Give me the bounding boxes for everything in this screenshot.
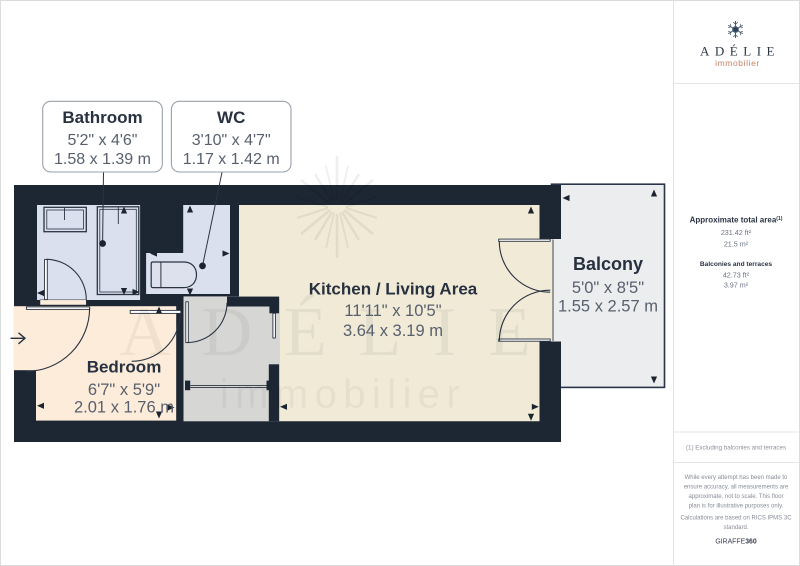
svg-text:231.42 ft²: 231.42 ft² (721, 228, 752, 237)
svg-text:plan is for illustrative purpo: plan is for illustrative purposes only. (689, 504, 784, 510)
svg-text:Calculations are based on RICS: Calculations are based on RICS IPMS 3C (680, 516, 792, 522)
svg-text:ensure accuracy, all measureme: ensure accuracy, all measurements are (684, 485, 789, 491)
svg-text:(1) Excluding balconies and te: (1) Excluding balconies and terraces (686, 445, 786, 452)
svg-text:Balconies and terraces: Balconies and terraces (700, 261, 773, 268)
svg-text:2.01 x 1.76 m: 2.01 x 1.76 m (74, 399, 174, 417)
svg-text:21.5 m²: 21.5 m² (724, 240, 749, 249)
svg-text:3.64 x 3.19 m: 3.64 x 3.19 m (343, 322, 443, 340)
svg-text:1.17 x 1.42 m: 1.17 x 1.42 m (183, 151, 280, 168)
svg-text:3'10" x 4'7": 3'10" x 4'7" (192, 132, 271, 149)
svg-text:WC: WC (217, 108, 245, 127)
svg-text:1.58 x 1.39 m: 1.58 x 1.39 m (54, 151, 151, 168)
svg-text:While every attempt has been m: While every attempt has been made to (685, 475, 788, 481)
svg-text:ADÉLIE: ADÉLIE (700, 44, 780, 59)
svg-text:immobilier: immobilier (220, 373, 466, 417)
svg-text:Bathroom: Bathroom (62, 108, 142, 127)
svg-text:GIRAFFE360: GIRAFFE360 (715, 539, 757, 546)
svg-text:Kitchen / Living Area: Kitchen / Living Area (309, 280, 478, 299)
svg-text:Approximate total area(1): Approximate total area(1) (690, 216, 783, 225)
svg-text:3.97 m²: 3.97 m² (724, 281, 749, 290)
svg-text:5'0" x 8'5": 5'0" x 8'5" (572, 279, 644, 297)
svg-text:5'2" x 4'6": 5'2" x 4'6" (68, 132, 138, 149)
svg-text:1.55 x 2.57 m: 1.55 x 2.57 m (558, 298, 658, 316)
svg-text:Balcony: Balcony (573, 254, 643, 274)
svg-text:approximate, not to scale. Thi: approximate, not to scale. This floor (689, 494, 784, 500)
svg-text:ADÉLIE: ADÉLIE (120, 294, 563, 371)
svg-text:Bedroom: Bedroom (87, 358, 162, 377)
svg-text:42.73 ft²: 42.73 ft² (723, 271, 750, 280)
svg-text:11'11" x 10'5": 11'11" x 10'5" (344, 302, 441, 320)
svg-text:standard.: standard. (723, 525, 748, 531)
svg-text:immobilier: immobilier (715, 58, 760, 68)
svg-text:6'7" x 5'9": 6'7" x 5'9" (88, 381, 160, 399)
